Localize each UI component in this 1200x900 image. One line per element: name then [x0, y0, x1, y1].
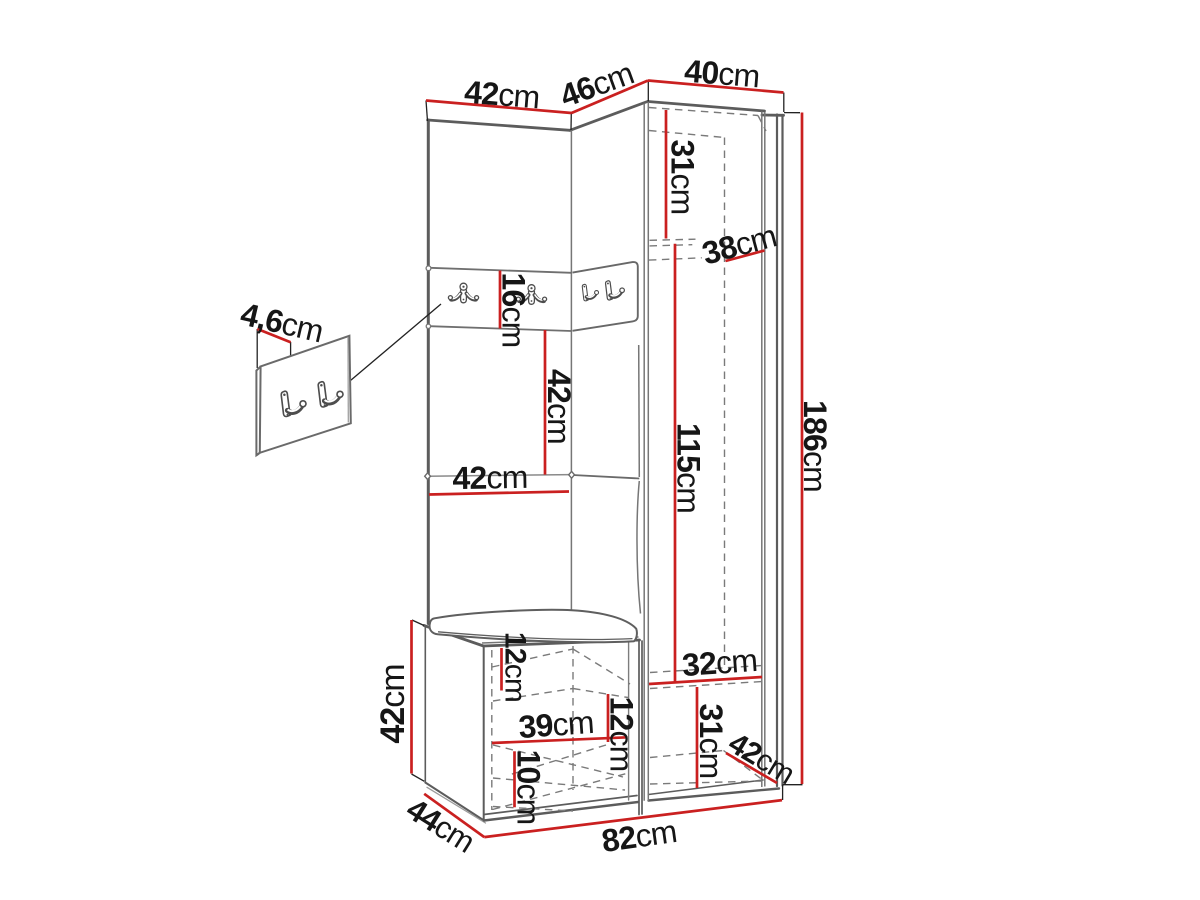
svg-text:40cm: 40cm	[683, 53, 761, 95]
svg-text:42cm: 42cm	[452, 459, 528, 496]
svg-text:32cm: 32cm	[681, 642, 758, 683]
svg-text:39cm: 39cm	[517, 704, 594, 745]
svg-text:186cm: 186cm	[797, 400, 833, 492]
svg-text:31cm: 31cm	[693, 703, 729, 778]
svg-text:10cm: 10cm	[511, 749, 547, 824]
svg-text:115cm: 115cm	[671, 423, 707, 513]
svg-text:12cm: 12cm	[499, 632, 532, 702]
svg-text:42cm: 42cm	[541, 369, 577, 444]
svg-text:12cm: 12cm	[604, 696, 640, 771]
svg-text:31cm: 31cm	[665, 139, 701, 214]
svg-text:16cm: 16cm	[496, 272, 532, 347]
svg-text:42cm: 42cm	[463, 74, 541, 116]
svg-text:42cm: 42cm	[374, 664, 412, 743]
